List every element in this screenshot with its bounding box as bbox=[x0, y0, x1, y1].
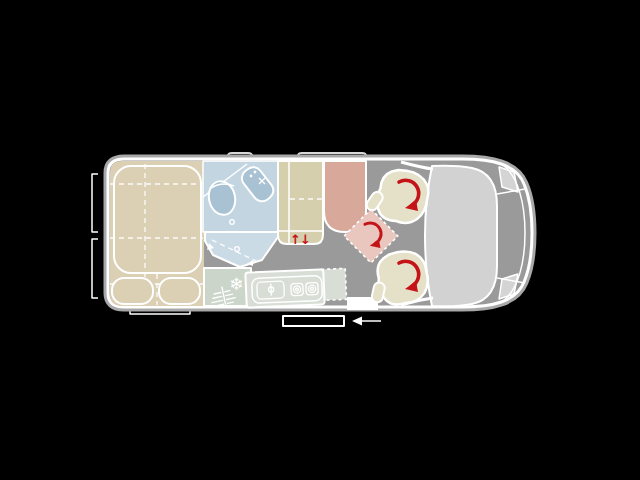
lift-arrow-down-icon: ↓ bbox=[300, 232, 311, 247]
travel-direction-arrowhead bbox=[352, 317, 362, 326]
floorplan-diagram: ↑ ↓ ❄ bbox=[0, 0, 640, 480]
rear-window-marker-bottom bbox=[92, 239, 98, 298]
bed-pillow-left bbox=[112, 278, 153, 304]
faucet-dot-1 bbox=[250, 175, 253, 178]
rear-window-marker-top bbox=[92, 174, 98, 232]
snowflake-icon: ❄ bbox=[229, 274, 243, 294]
bed-mattress bbox=[114, 166, 201, 273]
bed-pillow-right bbox=[159, 278, 200, 304]
cab-bonnet bbox=[425, 166, 497, 307]
faucet-dot-2 bbox=[254, 171, 257, 174]
sink-faucet-line bbox=[271, 284, 272, 296]
floorplan-canvas: ↑ ↓ ❄ bbox=[0, 0, 640, 480]
entry-door-marker bbox=[283, 316, 344, 326]
fridge bbox=[204, 268, 251, 306]
